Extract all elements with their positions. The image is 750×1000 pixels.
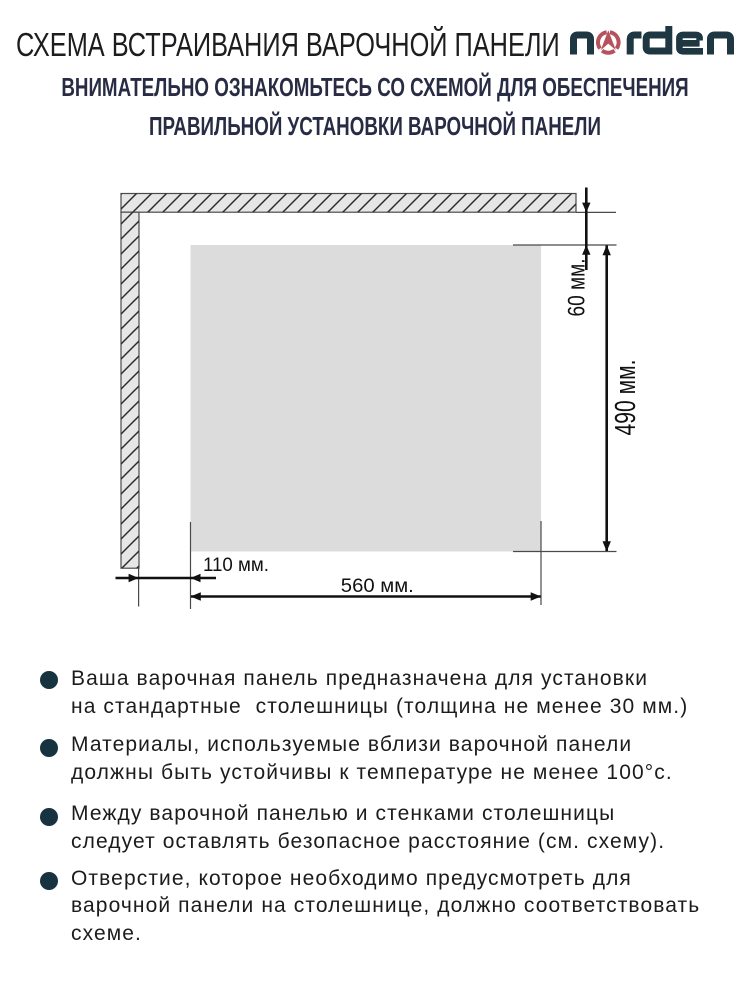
svg-text:60 мм.: 60 мм.	[564, 259, 591, 317]
svg-text:110 мм.: 110 мм.	[203, 555, 269, 576]
svg-text:490 мм.: 490 мм.	[610, 360, 642, 436]
svg-text:560 мм.: 560 мм.	[341, 576, 414, 597]
